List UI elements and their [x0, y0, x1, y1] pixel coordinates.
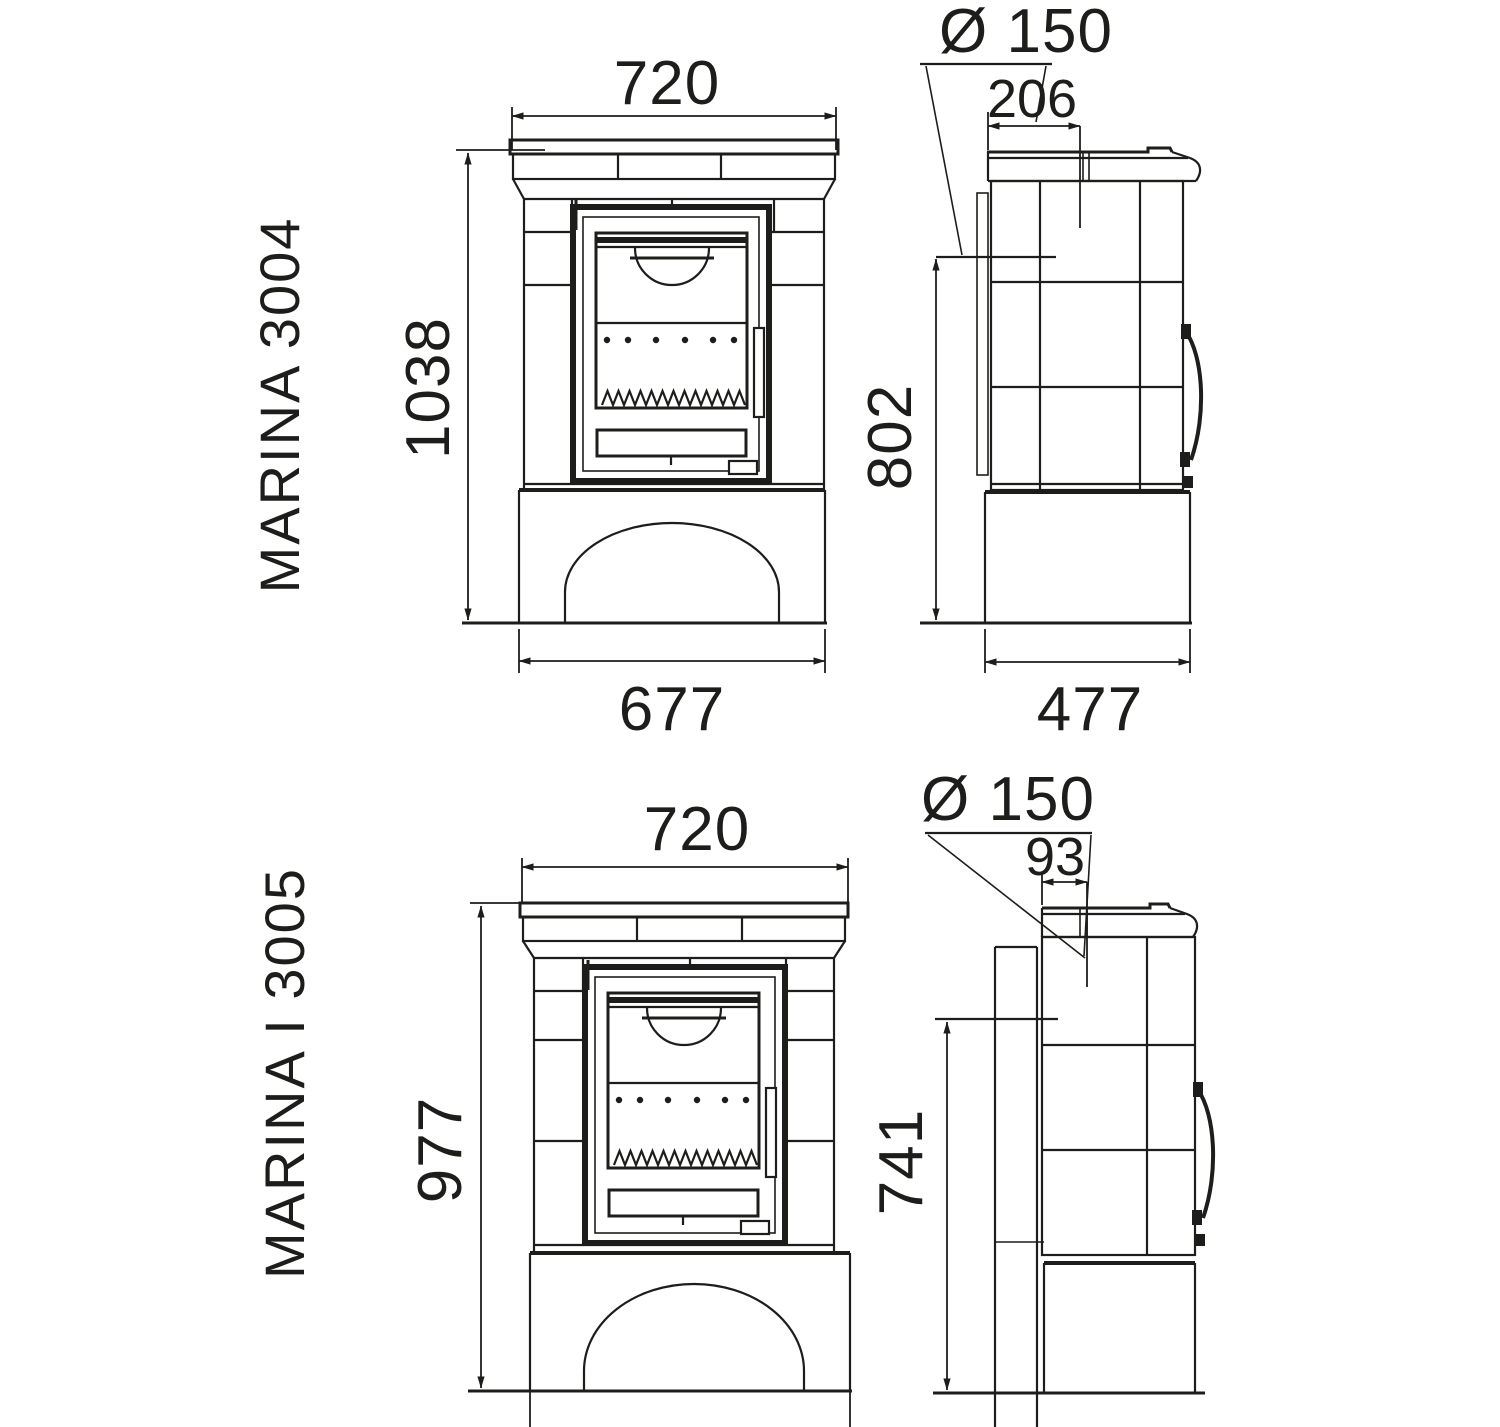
stove-3004-side-view: Ø 150 206: [856, 0, 1201, 744]
glass-top-band: [596, 237, 747, 243]
dim-3005-front-top-width: 720: [522, 795, 848, 902]
stove-3005-door: [585, 960, 785, 1243]
dim-text-3004-flue-offset: 206: [987, 69, 1077, 129]
dim-3004-front-top-width: 720: [512, 49, 836, 150]
dim-3004-front-base-width: 677: [519, 629, 825, 744]
stove-3005-side-view: Ø 150 93: [867, 765, 1213, 1427]
stove-3005-drawing: MARINA I 3005 720: [253, 765, 1213, 1427]
cap-molding: [1170, 908, 1197, 937]
dim-3004-rear-outlet-height: 802: [856, 257, 1056, 620]
door-latch: [729, 461, 757, 474]
dim-3004-flue-offset: 206: [987, 69, 1080, 228]
dim-text-3004-flue-diameter: Ø 150: [939, 0, 1113, 66]
door-handle: [754, 328, 764, 417]
dim-text-3004-outlet-height: 802: [856, 384, 925, 490]
stove-dimension-drawing: MARINA 3004 720: [0, 0, 1500, 1427]
door-outer-frame: [585, 967, 785, 1243]
dim-text-3005-top-width: 720: [644, 795, 750, 864]
stove-3005-cap: [520, 903, 848, 958]
dim-text-3004-base-width: 677: [619, 675, 725, 744]
door-handle: [766, 1088, 776, 1177]
rear-shield: [977, 193, 988, 475]
stove-3004-door: [573, 200, 769, 481]
glass-top-band: [608, 997, 759, 1003]
stove-3004-front-view: 720: [394, 49, 838, 744]
dim-text-3004-height: 1038: [394, 317, 463, 459]
dim-3004-front-height: 1038: [394, 150, 545, 620]
dim-text-3004-top-width: 720: [614, 49, 720, 118]
dim-3004-depth: 477: [985, 629, 1190, 744]
stove-3005-side-body: [1042, 937, 1195, 1255]
cap-molding: [1172, 152, 1200, 181]
stove-3005-front-view: 720: [406, 795, 852, 1427]
dim-3005-rear-outlet-height: 741: [867, 1019, 1058, 1390]
dim-text-3005-flue-diameter: Ø 150: [921, 765, 1095, 834]
stove-3004-cap: [510, 140, 838, 199]
base-arch: [565, 523, 779, 623]
dim-text-3005-outlet-height: 741: [867, 1109, 936, 1215]
model-label-3005: MARINA I 3005: [253, 867, 316, 1279]
stove-3004-drawing: MARINA 3004 720: [248, 0, 1201, 744]
stove-3005-base: [468, 1253, 852, 1427]
stove-3004-side-base: [920, 492, 1192, 623]
dim-text-3005-flue-offset: 93: [1025, 827, 1085, 887]
stove-3004-side-cap: [987, 148, 1200, 181]
base-arch: [584, 1284, 804, 1391]
door-latch: [741, 1221, 769, 1234]
stove-3004-base: [462, 490, 827, 623]
model-label-3004: MARINA 3004: [248, 217, 311, 594]
dim-text-3004-depth: 477: [1037, 675, 1143, 744]
drawing-canvas: MARINA 3004 720: [0, 0, 1500, 1427]
dim-text-3005-height: 977: [406, 1097, 475, 1203]
side-latch: [1184, 476, 1193, 488]
cutoff-extension-lines: [530, 1391, 850, 1427]
door-outer-frame: [573, 207, 769, 481]
stove-3005-side-cap: [1042, 904, 1197, 937]
stove-3005-side-base: [933, 1263, 1205, 1393]
side-latch: [1196, 1234, 1205, 1246]
